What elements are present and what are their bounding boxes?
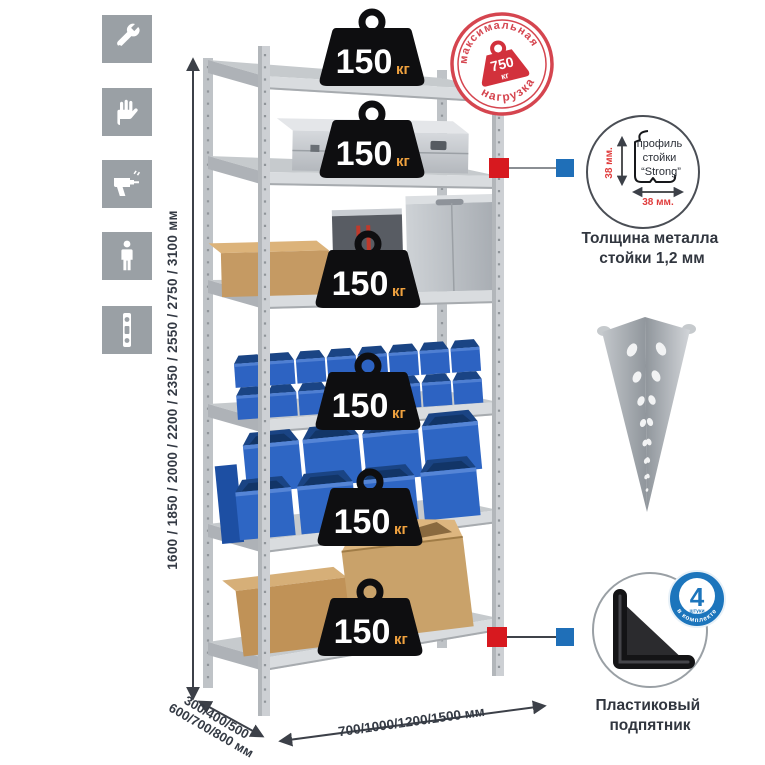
weight-unit: кг xyxy=(396,61,410,78)
weight-unit: кг xyxy=(392,405,406,422)
badge-count: 4 xyxy=(690,582,705,612)
rack-illustration: 150 кг 150 кг 150 кг 150 кг xyxy=(0,0,765,765)
weight-value: 150 xyxy=(334,503,391,541)
width-dimension-label: 700/1000/1200/1500 мм xyxy=(337,704,485,739)
foot-caption: Пластиковый подпятник xyxy=(596,697,705,734)
weight-shelf-2: 150 кг xyxy=(320,104,425,178)
weight-unit: кг xyxy=(396,153,410,170)
weight-value: 150 xyxy=(334,613,391,651)
weight-value: 150 xyxy=(336,43,393,81)
foot-detail: 4 штуки в комплекте Пластиковый подпятни… xyxy=(593,571,725,734)
weight-shelf-1: 150 кг xyxy=(320,12,425,86)
weight-unit: кг xyxy=(392,283,406,300)
max-load-stamp: максимальная нагрузка 750 кг xyxy=(441,3,562,124)
callout-bottom xyxy=(487,627,574,647)
badge-subtext: штуки xyxy=(689,609,704,615)
profile-dim-horizontal: 38 мм. xyxy=(642,197,674,208)
callout-top-red-marker xyxy=(489,158,509,178)
included-count-badge: 4 штуки в комплекте xyxy=(669,571,725,627)
weight-unit: кг xyxy=(394,631,408,648)
profile-caption: Толщина металла стойки 1,2 мм xyxy=(581,230,722,267)
depth-dimension-label: 300/400/500 600/700/800 мм xyxy=(166,688,263,761)
profile-label: профиль стойки “Strong” xyxy=(637,138,686,178)
product-infographic: 150 кг 150 кг 150 кг 150 кг xyxy=(0,0,765,765)
weight-value: 150 xyxy=(332,265,389,303)
callout-bottom-red-marker xyxy=(487,627,507,647)
callout-top xyxy=(489,158,574,178)
weight-value: 150 xyxy=(336,135,393,173)
weight-unit: кг xyxy=(394,521,408,538)
callout-bottom-blue-marker xyxy=(556,628,574,646)
height-dimension-label: 1600 / 1850 / 2000 / 2200 / 2350 / 2550 … xyxy=(165,210,180,570)
profile-dim-vertical: 38 мм. xyxy=(604,147,615,179)
callout-top-blue-marker xyxy=(556,159,574,177)
angle-post-image xyxy=(597,317,696,512)
profile-detail: 38 мм. 38 мм. профиль стойки “Strong” То… xyxy=(581,116,722,267)
weight-value: 150 xyxy=(332,387,389,425)
